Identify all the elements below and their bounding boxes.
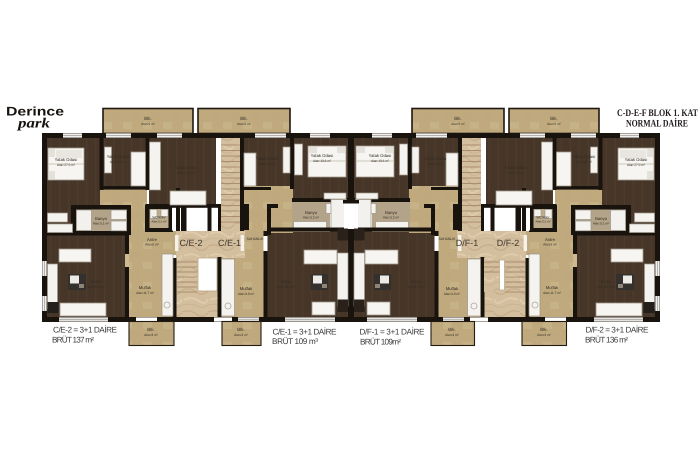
- svg-text:Alan:22.0 m²: Alan:22.0 m²: [277, 285, 295, 289]
- svg-text:Mutfak: Mutfak: [446, 286, 459, 291]
- svg-text:Alan:5.1 m²: Alan:5.1 m²: [593, 222, 609, 226]
- svg-text:Alan:11.7 m²: Alan:11.7 m²: [543, 291, 561, 295]
- svg-text:Alan:3 m²: Alan:3 m²: [234, 333, 248, 337]
- svg-text:Alan:3 m²: Alan:3 m²: [144, 333, 158, 337]
- svg-text:D/F-2: D/F-2: [497, 238, 520, 248]
- svg-text:BRÜT 109m²: BRÜT 109m²: [360, 337, 401, 346]
- svg-text:Alan:5 m²: Alan:5 m²: [451, 122, 465, 126]
- svg-text:BRÜT 109 m³: BRÜT 109 m³: [272, 337, 318, 346]
- svg-text:C/E-2: C/E-2: [179, 238, 202, 248]
- svg-text:Blk.: Blk.: [240, 116, 248, 121]
- svg-text:Salon: Salon: [411, 279, 422, 284]
- svg-text:BRÜT 137 m²: BRÜT 137 m²: [52, 335, 94, 344]
- svg-text:Blk.: Blk.: [540, 327, 548, 332]
- svg-text:Alan:13.6 m²: Alan:13.6 m²: [313, 159, 331, 163]
- svg-text:Alan:3 m²: Alan:3 m²: [445, 333, 459, 337]
- svg-text:Yatak Odası: Yatak Odası: [107, 154, 130, 159]
- svg-text:Yatak Odası: Yatak Odası: [625, 157, 648, 162]
- svg-text:D/F-1 = 3+1 DAİRE: D/F-1 = 3+1 DAİRE: [360, 327, 426, 337]
- svg-text:Alan:26.5 m²: Alan:26.5 m²: [87, 285, 105, 289]
- svg-text:Blk.: Blk.: [550, 116, 558, 121]
- svg-text:Alan:9.0 m²: Alan:9.0 m²: [427, 162, 443, 166]
- svg-text:Yatak Odası: Yatak Odası: [311, 153, 334, 158]
- svg-text:Alan:6 m²: Alan:6 m²: [145, 243, 159, 247]
- svg-text:Alan:2.5 m²: Alan:2.5 m²: [151, 220, 166, 224]
- svg-text:Blk.: Blk.: [144, 116, 152, 121]
- svg-text:Alan:22.0 m²: Alan:22.0 m²: [407, 285, 425, 289]
- svg-text:Alan:6 m²: Alan:6 m²: [543, 243, 557, 247]
- svg-text:Alan:11.7 m²: Alan:11.7 m²: [136, 291, 154, 295]
- svg-text:Banyo: Banyo: [95, 216, 108, 221]
- svg-text:Alan:26.5 m²: Alan:26.5 m²: [597, 285, 615, 289]
- svg-text:SAHANLIK: SAHANLIK: [439, 237, 457, 241]
- svg-text:Blk.: Blk.: [237, 327, 245, 332]
- svg-text:Alan:5 m²: Alan:5 m²: [237, 122, 251, 126]
- svg-text:Alan:5 m²: Alan:5 m²: [547, 122, 561, 126]
- svg-text:C/E-1: C/E-1: [218, 238, 241, 248]
- svg-text:Yatak Odası: Yatak Odası: [369, 153, 392, 158]
- svg-text:Alan:27.0 m²: Alan:27.0 m²: [627, 163, 645, 167]
- svg-text:Alan:9.3 m²: Alan:9.3 m²: [444, 292, 460, 296]
- svg-text:Antre: Antre: [545, 237, 556, 242]
- svg-text:Alan:14.0 m²: Alan:14.0 m²: [507, 171, 525, 175]
- svg-text:Salon: Salon: [91, 279, 102, 284]
- svg-text:Alan:2.5 m²: Alan:2.5 m²: [535, 220, 550, 224]
- svg-text:C/E-2 = 3+1 DAİRE: C/E-2 = 3+1 DAİRE: [53, 325, 118, 335]
- svg-text:D/F-2 = 3+1 DAİRE: D/F-2 = 3+1 DAİRE: [586, 325, 650, 335]
- svg-text:BRÜT 136 m²: BRÜT 136 m²: [585, 335, 628, 344]
- svg-text:Yatak Odası: Yatak Odası: [55, 157, 78, 162]
- svg-text:D/F-1: D/F-1: [456, 238, 479, 248]
- svg-text:Alan:5.2 m²: Alan:5.2 m²: [303, 216, 319, 220]
- svg-text:Alan:9.0 m²: Alan:9.0 m²: [259, 162, 275, 166]
- svg-text:Mutfak: Mutfak: [240, 286, 253, 291]
- svg-text:Yatak Odası: Yatak Odası: [256, 156, 279, 161]
- svg-text:Alan:5 m²: Alan:5 m²: [141, 122, 155, 126]
- svg-text:Banyo: Banyo: [305, 210, 318, 215]
- svg-text:Yatak Odası: Yatak Odası: [424, 156, 447, 161]
- svg-text:Blk.: Blk.: [448, 327, 456, 332]
- svg-text:C-D-E-F BLOK 1. KAT: C-D-E-F BLOK 1. KAT: [617, 108, 698, 119]
- svg-text:Alan:5.2 m²: Alan:5.2 m²: [383, 216, 399, 220]
- svg-text:C/E-1 = 3+1 DAİRE: C/E-1 = 3+1 DAİRE: [273, 327, 338, 337]
- svg-text:Yatak Odası: Yatak Odası: [573, 154, 596, 159]
- svg-text:Alan:14.0 m²: Alan:14.0 m²: [177, 171, 195, 175]
- svg-text:Yatak Odası: Yatak Odası: [175, 165, 198, 170]
- svg-text:Alan:9.0 m²: Alan:9.0 m²: [110, 160, 126, 164]
- svg-text:Alan:3 m²: Alan:3 m²: [537, 333, 551, 337]
- svg-text:Alan:13.6 m²: Alan:13.6 m²: [371, 159, 389, 163]
- svg-text:Blk.: Blk.: [147, 327, 155, 332]
- svg-text:Antre: Antre: [147, 237, 158, 242]
- svg-text:Alan:9.3 m²: Alan:9.3 m²: [238, 292, 254, 296]
- svg-text:Blk.: Blk.: [454, 116, 462, 121]
- svg-text:Banyo: Banyo: [385, 210, 398, 215]
- svg-text:SAHANLIK: SAHANLIK: [247, 237, 265, 241]
- svg-text:park: park: [17, 117, 50, 132]
- svg-text:Salon: Salon: [281, 279, 292, 284]
- svg-text:Alan:5.1 m²: Alan:5.1 m²: [93, 222, 109, 226]
- svg-text:Mutfak: Mutfak: [546, 285, 559, 290]
- svg-text:NORMAL DAİRE: NORMAL DAİRE: [626, 118, 688, 130]
- svg-text:Alan:9.0 m²: Alan:9.0 m²: [576, 160, 592, 164]
- svg-text:Mutfak: Mutfak: [139, 285, 152, 290]
- svg-text:Salon: Salon: [601, 279, 612, 284]
- svg-text:Alan:27.0 m²: Alan:27.0 m²: [57, 163, 75, 167]
- svg-text:Yatak Odası: Yatak Odası: [505, 165, 528, 170]
- svg-text:Banyo: Banyo: [595, 216, 608, 221]
